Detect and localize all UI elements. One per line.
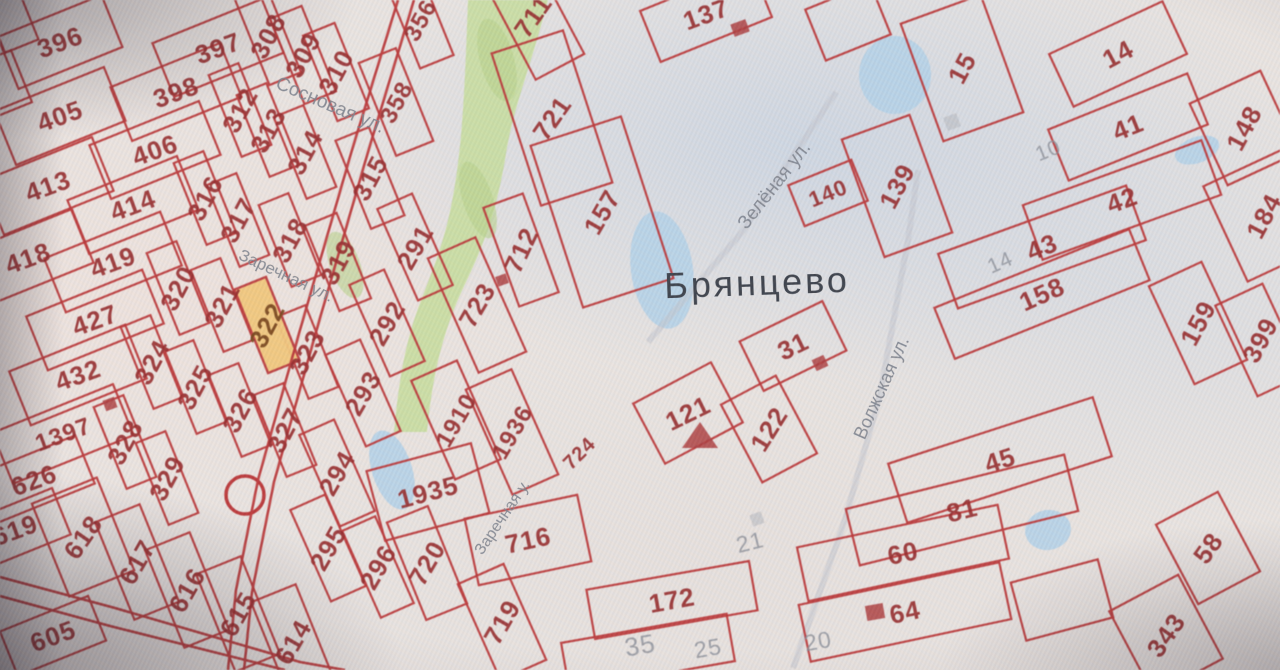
parcel-number: 405 bbox=[33, 94, 87, 138]
base-map-number: 35 bbox=[622, 628, 658, 663]
parcel-number: 293 bbox=[338, 365, 387, 420]
parcel-number: 81 bbox=[943, 492, 980, 529]
parcel-number: 398 bbox=[149, 70, 203, 114]
parcel-number: 58 bbox=[1187, 527, 1229, 570]
building-mark bbox=[730, 19, 749, 37]
parcel-number: 184 bbox=[1240, 189, 1280, 244]
parcel-number: 716 bbox=[502, 521, 554, 560]
parcel-number: 396 bbox=[33, 20, 87, 64]
parcel-boundary[interactable] bbox=[1011, 559, 1113, 640]
parcel-number: 343 bbox=[1140, 607, 1191, 662]
parcel-number: 399 bbox=[1236, 313, 1280, 368]
parcel-number: 419 bbox=[86, 240, 140, 284]
street-road bbox=[648, 92, 836, 342]
parcel-number: 140 bbox=[805, 174, 851, 212]
parcel-number: 719 bbox=[477, 594, 526, 649]
parcel-number: 296 bbox=[353, 539, 402, 594]
parcel-number: 31 bbox=[773, 326, 814, 367]
parcel-number: 158 bbox=[1015, 271, 1070, 317]
pond bbox=[623, 207, 701, 332]
base-map-number: 14 bbox=[984, 247, 1017, 278]
parcel-number: 121 bbox=[661, 389, 716, 436]
parcel-number: 323 bbox=[283, 325, 331, 380]
parcel-number: 14 bbox=[1097, 34, 1138, 75]
parcel-number: 148 bbox=[1220, 101, 1268, 156]
parcel-number: 1910 bbox=[431, 389, 483, 452]
parcel-number: 1397 bbox=[32, 412, 95, 457]
parcel-number: 41 bbox=[1108, 107, 1148, 146]
parcel-number: 157 bbox=[577, 184, 626, 239]
parcel-number: 159 bbox=[1174, 296, 1222, 351]
parcel-number: 318 bbox=[266, 213, 314, 268]
parcel-number: 356 bbox=[399, 0, 443, 46]
circle-feature bbox=[226, 476, 264, 514]
parcel-number: 15 bbox=[942, 47, 983, 88]
parcel-boundary[interactable] bbox=[0, 0, 38, 53]
parcel-number: 324 bbox=[128, 335, 176, 390]
parcel-number: 60 bbox=[885, 535, 921, 571]
base-map-number: 25 bbox=[692, 633, 724, 663]
parcel-number: 1936 bbox=[487, 401, 539, 464]
parcel-number: 64 bbox=[887, 594, 923, 630]
parcel-number: 172 bbox=[647, 581, 698, 619]
parcel-number: 292 bbox=[362, 295, 411, 350]
parcel-number: 314 bbox=[281, 125, 329, 180]
parcel-number: 618 bbox=[57, 509, 108, 564]
parcel-number: 418 bbox=[1, 236, 55, 280]
parcel-number: 315 bbox=[346, 151, 394, 206]
building-mark bbox=[812, 355, 829, 371]
base-building bbox=[943, 113, 961, 131]
parcel-number: 325 bbox=[171, 360, 219, 415]
parcel-number: 721 bbox=[526, 90, 577, 145]
parcel-number: 327 bbox=[261, 403, 309, 458]
parcel-number: 720 bbox=[402, 535, 451, 590]
base-building bbox=[749, 511, 764, 526]
parcel-number: 605 bbox=[26, 614, 80, 658]
parcel-number: 427 bbox=[68, 298, 122, 342]
map-canvas[interactable]: 3964054134183973984064144194274321397626… bbox=[0, 0, 1280, 670]
cadastral-map-photo: 3964054134183973984064144194274321397626… bbox=[0, 0, 1280, 670]
base-map-number: 10 bbox=[1032, 135, 1064, 166]
base-map-number: 21 bbox=[733, 526, 766, 558]
parcel-number: 724 bbox=[559, 433, 600, 474]
building-mark bbox=[865, 603, 885, 621]
parcel-number: 294 bbox=[312, 445, 361, 500]
base-map-number: 20 bbox=[802, 626, 834, 656]
parcel-number: 43 bbox=[1022, 227, 1062, 266]
parcel-number: 326 bbox=[216, 383, 264, 438]
parcel-number: 137 bbox=[679, 0, 733, 36]
parcel-number: 122 bbox=[744, 401, 794, 456]
